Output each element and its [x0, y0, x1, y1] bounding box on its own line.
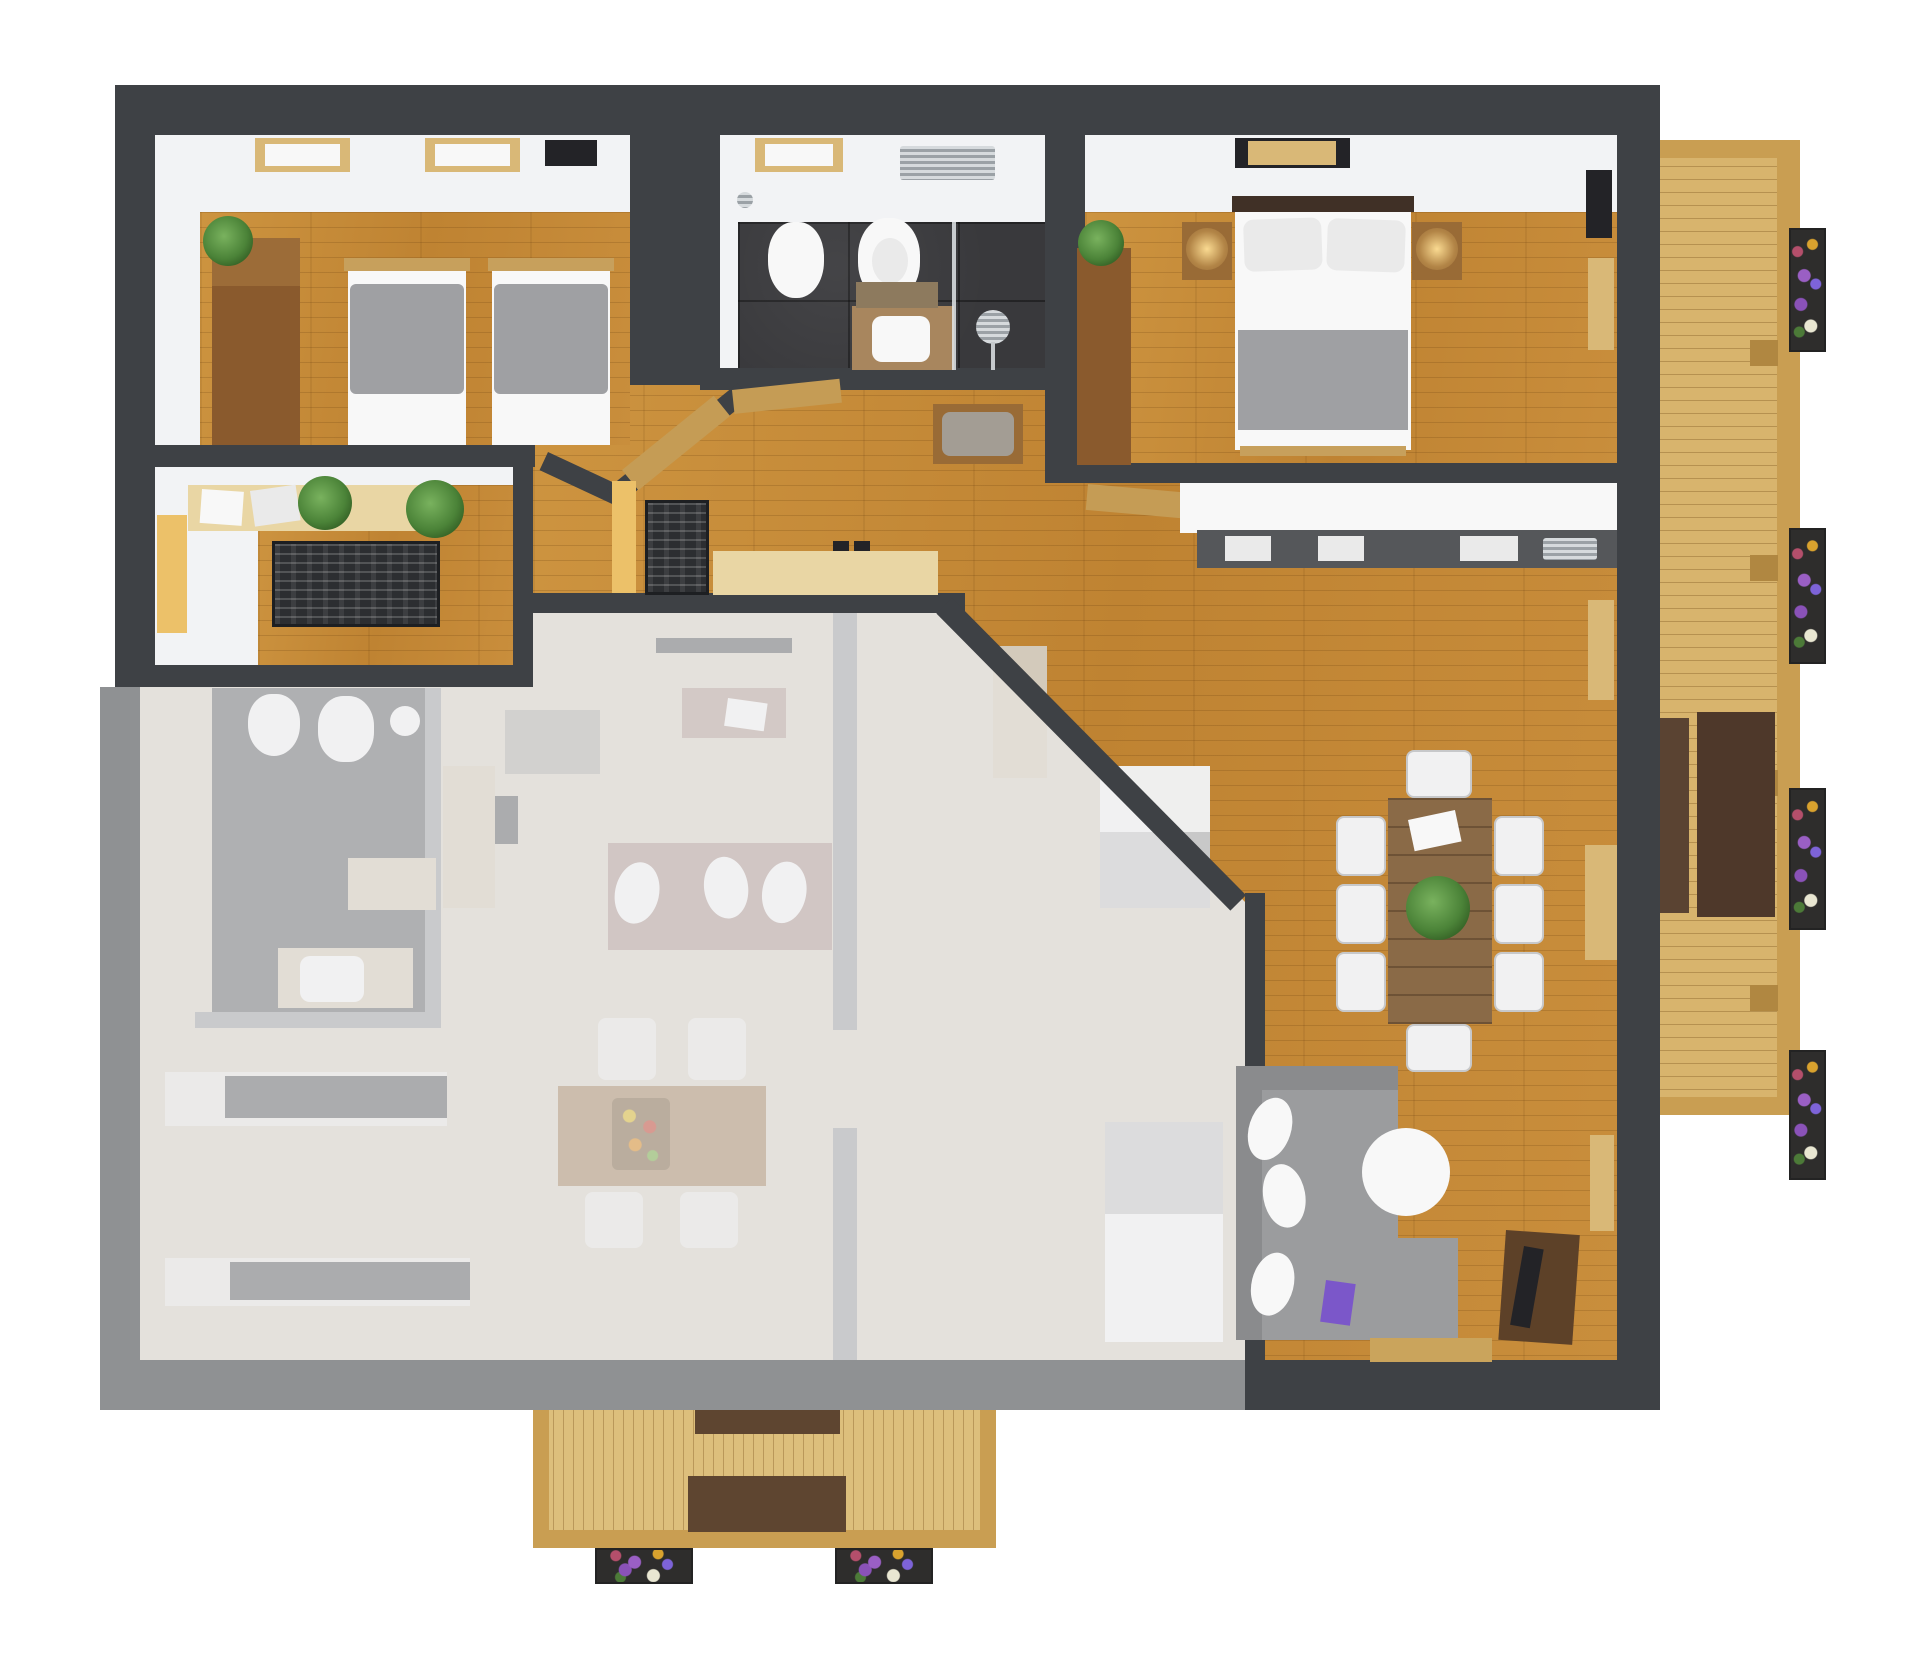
master-pillow-left [1243, 217, 1323, 272]
study-plant-1 [298, 476, 352, 530]
master-pillow-right [1326, 218, 1406, 273]
dining-chair-right-1 [1494, 816, 1544, 876]
wall-study-bottom [115, 665, 533, 687]
dining-plant [1406, 876, 1470, 940]
bathroom-glass-panel [952, 222, 956, 370]
dining-chair-right-3 [1494, 952, 1544, 1012]
dining-chair-left-3 [1336, 952, 1386, 1012]
study-door-left [157, 515, 187, 633]
living-round-rug [1362, 1128, 1450, 1216]
balcony-table [1697, 712, 1775, 917]
master-window-wood [1248, 141, 1336, 165]
master-bed-headboard [1232, 196, 1414, 212]
hall-slippers-1 [833, 541, 849, 551]
twin-bed-left-sheet [348, 394, 466, 430]
balcony-rail-tie-4 [1750, 985, 1778, 1011]
balcony-flower-box-2 [1789, 528, 1826, 664]
bathroom-toilet [768, 222, 824, 298]
bathroom-shower-bar [991, 342, 995, 370]
balcony-deck [1655, 140, 1777, 1115]
kitchen-sink [1543, 538, 1597, 560]
balcony-flower-box-3 [1789, 788, 1826, 930]
twin-bed-left-blanket [350, 284, 464, 394]
bathroom-valve [737, 192, 753, 208]
living-window-3 [1590, 1135, 1614, 1231]
porch-step [688, 1476, 846, 1532]
master-plant [1078, 220, 1124, 266]
balcony-door [1585, 845, 1617, 960]
twin-bed-right-blanket [494, 284, 608, 394]
kitchen-appliance-2 [1318, 536, 1364, 561]
bathroom-shower-mixer [976, 310, 1010, 344]
balcony-rail-bottom [1655, 1097, 1800, 1115]
wall-master-bottom [1060, 463, 1617, 483]
dining-chair-bottom [1406, 1024, 1472, 1072]
porch-mat [695, 1408, 840, 1434]
kitchen-upper-cabinets [1180, 483, 1617, 533]
study-plant-2 [406, 480, 464, 538]
porch-rail-left [533, 1408, 549, 1548]
study-door-hall [612, 481, 636, 593]
twin-picture-frame [545, 140, 597, 166]
sofa-back-top [1236, 1066, 1398, 1090]
twin-bed-left-headboard [344, 258, 470, 271]
living-window-1 [1588, 258, 1614, 350]
balcony-flower-box-1 [1789, 228, 1826, 352]
twin-bed-right-headboard [488, 258, 614, 271]
hall-console [713, 551, 938, 595]
bathroom-skylight-glass [765, 144, 833, 166]
bathroom-bidet-bowl [872, 238, 908, 284]
porch-rail-right [980, 1408, 996, 1548]
sofa-book [1320, 1280, 1356, 1326]
bathroom-towel-rack [900, 146, 995, 180]
bathroom-sink [872, 316, 930, 362]
entry-mat [1370, 1338, 1492, 1362]
balcony-bench [1659, 718, 1689, 913]
dining-chair-top [1406, 750, 1472, 798]
twin-bed-right-sheet [492, 394, 610, 430]
hall-bench-cushion [942, 412, 1014, 456]
wall-bathroom-left [700, 135, 720, 370]
porch-flower-box-left [595, 1548, 693, 1584]
master-lamp-left [1186, 228, 1228, 270]
twin-window-left-glass [265, 144, 340, 166]
study-rug [272, 541, 440, 627]
floor-plan [0, 0, 1920, 1671]
wall-outer-right [1617, 85, 1660, 1410]
porch-flower-box-right [835, 1548, 933, 1584]
twin-window-right-glass [435, 144, 510, 166]
neighbor-wall-bottom [100, 1360, 1245, 1410]
desk [1498, 1230, 1579, 1345]
porch-rail-bottom [533, 1530, 996, 1548]
balcony-rail-tie-2 [1750, 555, 1778, 581]
wall-hall-bottom [533, 593, 965, 613]
master-art-frame [1586, 170, 1612, 238]
balcony-flower-box-4 [1789, 1050, 1826, 1180]
master-lamp-right [1416, 228, 1458, 270]
wall-outer-top [115, 85, 1660, 135]
wall-outer-left [115, 85, 155, 687]
dining-chair-left-1 [1336, 816, 1386, 876]
master-duvet-gray [1238, 330, 1408, 430]
wall-outer-bottom-right [1245, 1360, 1660, 1410]
dining-chair-left-2 [1336, 884, 1386, 944]
master-wardrobe [1077, 248, 1131, 465]
twin-plant [203, 216, 253, 266]
hall-runner-rug [645, 500, 709, 595]
dining-chair-right-2 [1494, 884, 1544, 944]
master-bed-frame [1240, 446, 1406, 456]
sofa-chaise [1396, 1238, 1458, 1340]
living-window-2 [1588, 600, 1614, 700]
kitchen-appliance-1 [1225, 536, 1271, 561]
wall-twin-bedroom-bottom [115, 445, 535, 467]
twin-wardrobe [212, 286, 300, 445]
bathroom-mat [856, 282, 938, 308]
neighbor-wall-left [100, 687, 140, 1410]
study-magazine-2 [250, 485, 301, 527]
study-magazine-1 [200, 489, 244, 526]
wall-study-right [513, 467, 533, 687]
kitchen-appliance-3 [1460, 536, 1518, 561]
hall-slippers-2 [854, 541, 870, 551]
balcony-rail-tie-1 [1750, 340, 1778, 366]
